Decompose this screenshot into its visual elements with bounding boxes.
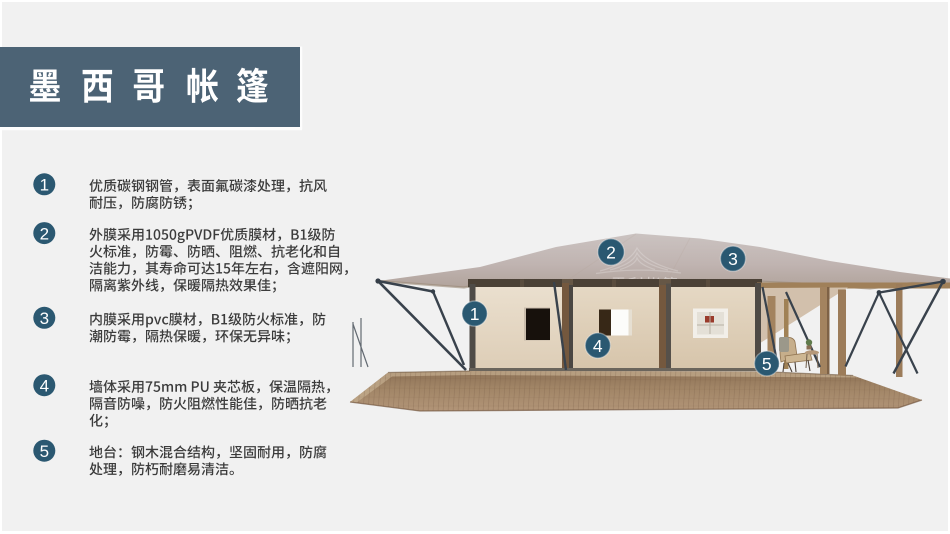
svg-text:2: 2: [40, 224, 49, 243]
svg-text:3: 3: [728, 249, 738, 269]
svg-text:4: 4: [593, 336, 603, 356]
svg-text:4: 4: [40, 376, 49, 395]
svg-text:1: 1: [40, 176, 49, 195]
svg-text:5: 5: [762, 354, 772, 374]
svg-text:3: 3: [40, 309, 49, 328]
svg-text:1: 1: [470, 304, 480, 324]
svg-text:5: 5: [40, 442, 49, 461]
svg-text:2: 2: [606, 243, 616, 263]
